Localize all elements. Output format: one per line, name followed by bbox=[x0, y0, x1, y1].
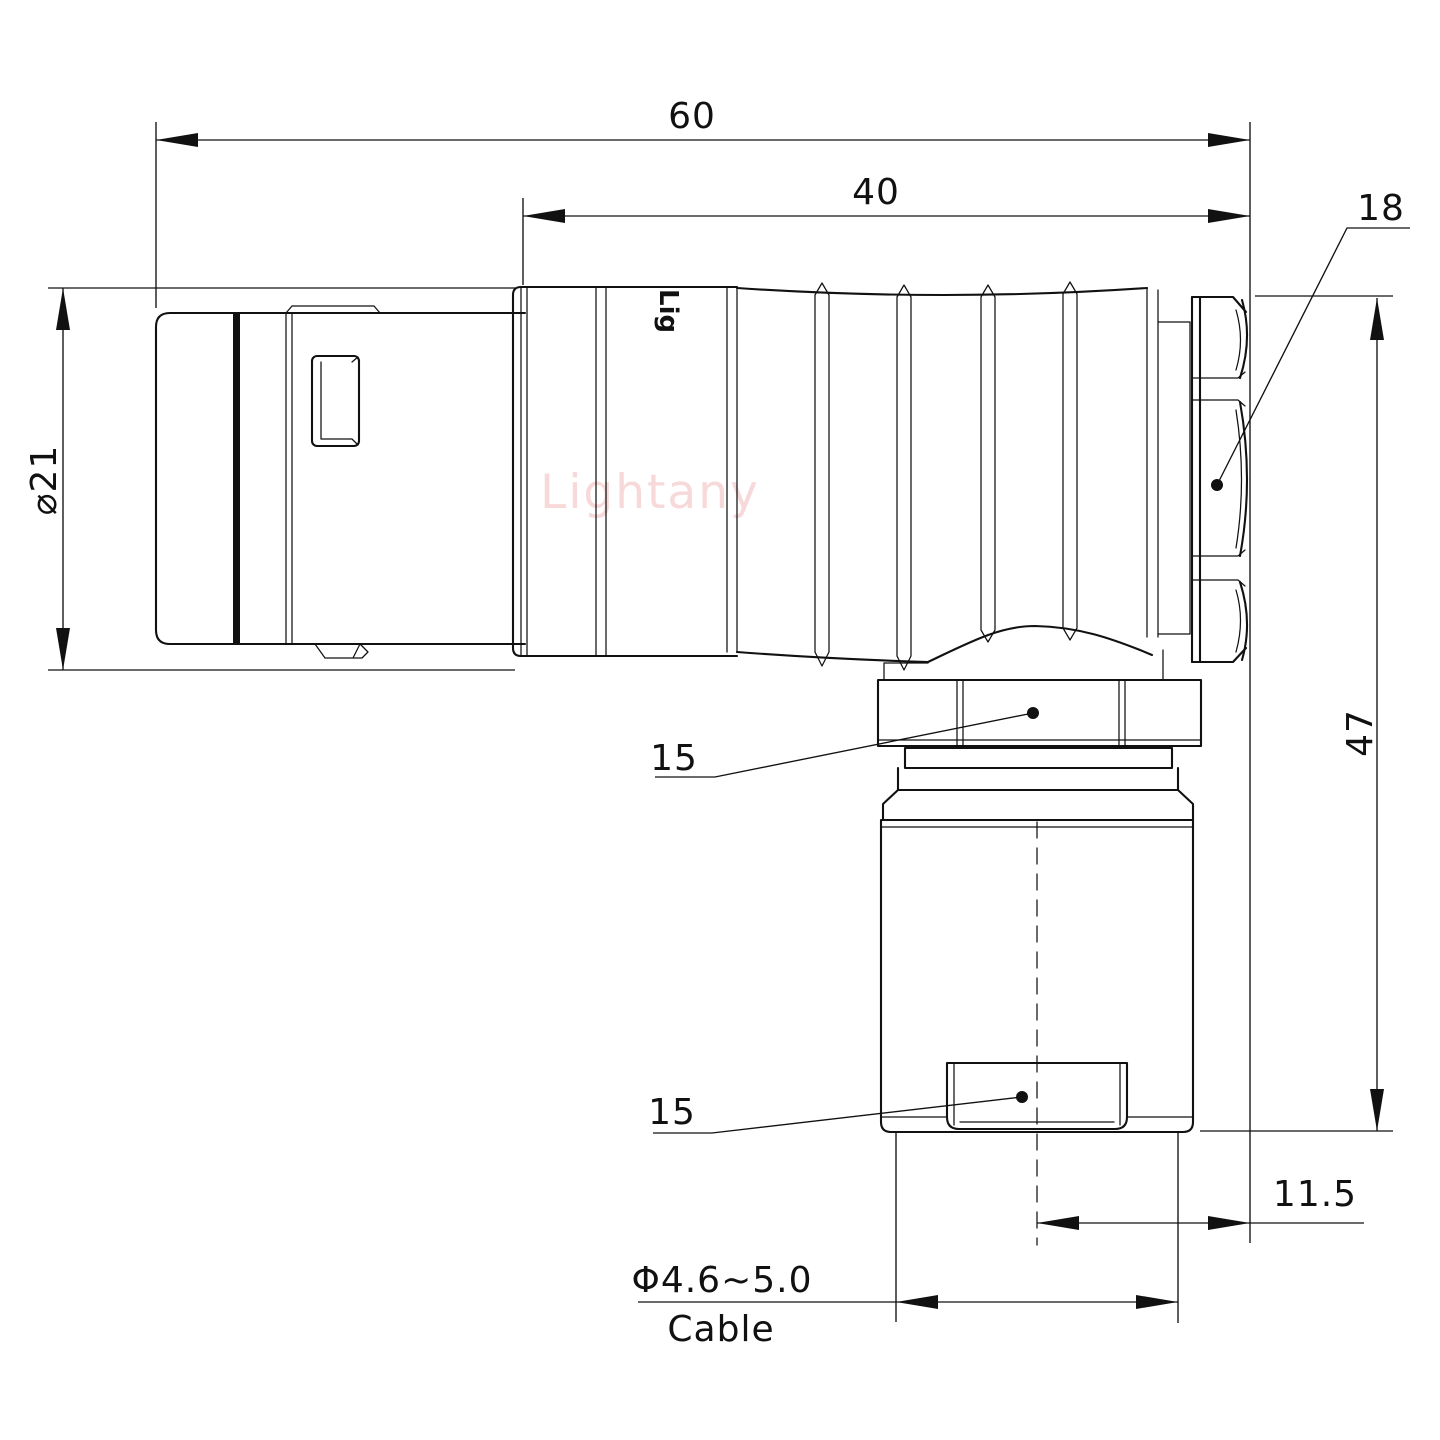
dim-height-label: 47 bbox=[1340, 709, 1381, 757]
knurl-strip bbox=[815, 283, 829, 666]
dim-shell-diameter-label: ⌀21 bbox=[24, 445, 65, 515]
dim-body-length-label: 40 bbox=[852, 172, 900, 213]
knurled-shell bbox=[727, 282, 1163, 680]
knurl-strip bbox=[897, 285, 911, 670]
technical-drawing-page: Lightany Lig bbox=[0, 0, 1440, 1440]
dim-cable-bushing-label: 15 bbox=[648, 1092, 696, 1133]
dim-coupling-nut-label: 15 bbox=[650, 738, 698, 779]
dim-cable: Φ4.6~5.0 Cable bbox=[631, 1132, 1178, 1350]
dim-shell-diameter: ⌀21 bbox=[24, 288, 515, 670]
dim-cable-offset: 11.5 bbox=[1037, 1174, 1364, 1230]
connector-elbow-section bbox=[878, 680, 1201, 1245]
front-step bbox=[1158, 322, 1190, 634]
coupling-nut bbox=[878, 680, 1201, 746]
dim-height: 47 bbox=[1200, 296, 1393, 1131]
bottom-key-tab bbox=[315, 644, 368, 658]
knurl-strip bbox=[981, 285, 995, 642]
dim-cable-word-label: Cable bbox=[667, 1309, 774, 1350]
connector-technical-drawing: Lightany Lig bbox=[0, 0, 1440, 1440]
dim-nut-size-label: 18 bbox=[1357, 188, 1405, 229]
shell-groove-band bbox=[233, 313, 240, 644]
dim-cable-diameter-label: Φ4.6~5.0 bbox=[631, 1260, 812, 1301]
dim-body-length: 40 bbox=[523, 172, 1250, 285]
knurl-strips bbox=[815, 282, 1077, 670]
dim-cable-bushing: 15 bbox=[648, 1091, 1028, 1133]
knurl-strip bbox=[1063, 282, 1077, 640]
latch-window bbox=[312, 356, 359, 446]
dim-cable-offset-label: 11.5 bbox=[1273, 1174, 1357, 1215]
stepped-rings bbox=[883, 748, 1193, 820]
molded-brand-logo: Lig bbox=[653, 289, 683, 333]
dim-overall-length-label: 60 bbox=[668, 96, 716, 137]
rear-shell bbox=[156, 306, 525, 658]
